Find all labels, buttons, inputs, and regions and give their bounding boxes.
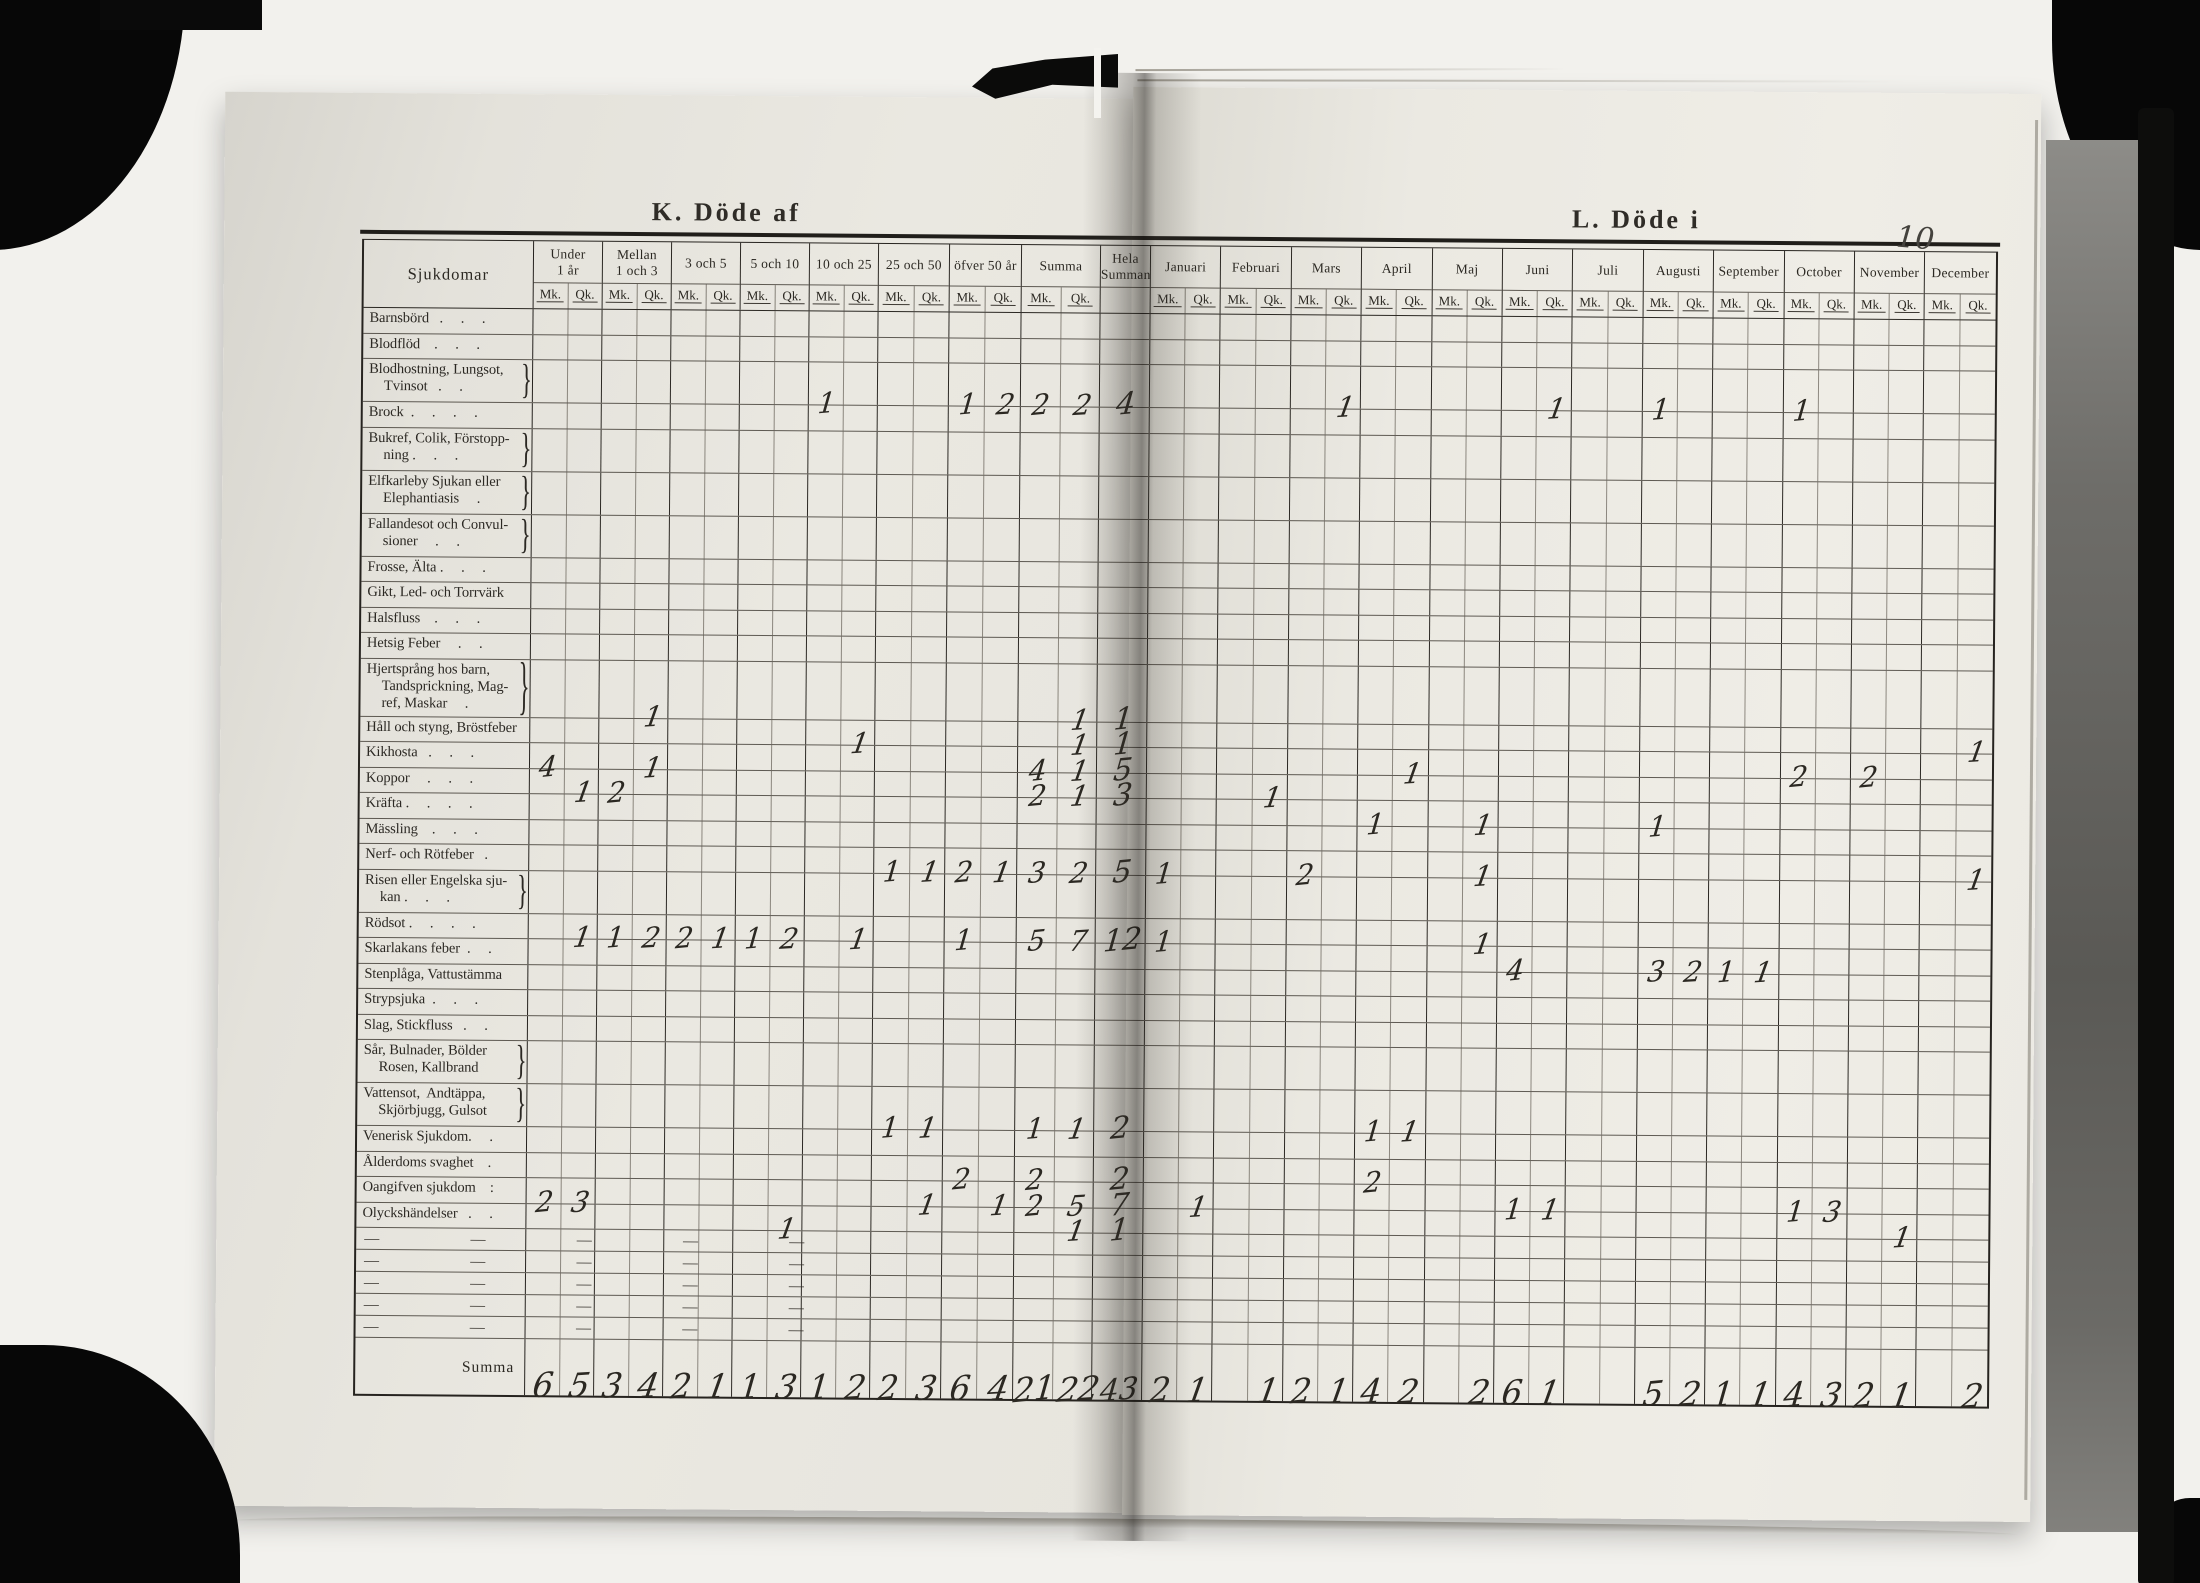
- cell-sep_mk: [1708, 999, 1742, 1024]
- body-group-nov: [1851, 670, 1922, 728]
- cell-jul_qk: [1607, 343, 1642, 368]
- body-group-jan: [1147, 774, 1218, 799]
- body-group-o50: [946, 797, 1018, 822]
- body-group-a1025: [803, 1180, 872, 1205]
- cell-okt_qk: [1811, 1283, 1846, 1304]
- cell-a510_qk: [767, 1180, 802, 1205]
- cell-a510_mk: [738, 559, 772, 584]
- book-cover-edge: [2046, 140, 2142, 1532]
- body-group-jul: [1566, 1135, 1637, 1160]
- cell-a510_mk: [733, 1231, 767, 1252]
- cell-jan_mk: [1148, 614, 1182, 639]
- cell-a510_mk: [737, 745, 771, 770]
- cell-a1025_mk: [805, 847, 839, 872]
- cell-mar_mk: [1283, 1301, 1317, 1322]
- body-group-a35: [666, 966, 735, 991]
- cell-a2550_qk: [909, 772, 945, 797]
- body-group-jan: [1145, 970, 1216, 995]
- cell-maj_mk: [1429, 725, 1463, 750]
- cell-jun_qk: [1531, 1049, 1567, 1091]
- subcol-nov-mk: Mk.: [1854, 294, 1888, 319]
- cell-aug_mk: [1641, 566, 1675, 591]
- body-group-apr: [1354, 1258, 1425, 1280]
- cell-aug_qk: 2: [1672, 948, 1707, 973]
- cell-aug_mk: [1642, 437, 1677, 479]
- cell-nov_qk: [1882, 1163, 1917, 1188]
- cell-m13_qk: [628, 1296, 663, 1317]
- cell-apr_mk: [1357, 946, 1391, 971]
- handwritten-value: 2: [1466, 1375, 1493, 1410]
- body-group-aug: 1: [1643, 369, 1714, 412]
- cell-o50_mk: [942, 1298, 977, 1319]
- cell-a35_qk: [697, 1318, 732, 1339]
- cell-a2550_mk: [870, 1320, 905, 1341]
- body-group-jan: [1149, 434, 1220, 477]
- cell-okt_mk: [1782, 524, 1817, 566]
- body-group-okt: 1: [1783, 370, 1854, 413]
- handwritten-value: 1: [816, 388, 836, 418]
- body-group-m13: 1: [599, 744, 668, 769]
- body-group-a510: [733, 1297, 802, 1319]
- body-group-jan: [1147, 799, 1218, 824]
- cell-sum_qk: [1057, 638, 1097, 663]
- cell-u1_qk: [563, 743, 598, 768]
- body-group-maj: [1432, 316, 1503, 341]
- cell-o50_qk: [984, 313, 1020, 338]
- body-group-aug: 32: [1638, 948, 1709, 973]
- body-group-dec: [1917, 1328, 1988, 1350]
- cell-dec_qk: [1952, 1262, 1988, 1283]
- cell-a1025_mk: [805, 822, 839, 847]
- body-group-aug: [1642, 437, 1713, 480]
- cell-m13_mk: [595, 1204, 629, 1229]
- cell-maj_mk: [1428, 852, 1462, 877]
- cell-aug_mk: [1636, 1260, 1670, 1281]
- body-group-dec: [1920, 925, 1991, 950]
- cell-hs: [1093, 1300, 1142, 1321]
- cell-apr_qk: 1: [1390, 1091, 1426, 1133]
- body-group-maj: [1425, 1211, 1496, 1236]
- cell-okt_qk: [1816, 568, 1851, 593]
- blank-row-dashes: — — — — —: [356, 1231, 525, 1249]
- row-label: Vattensot, Andtäppa,Skjörbjugg, Gulsot: [357, 1083, 526, 1121]
- cell-maj_qk: [1466, 367, 1502, 409]
- cell-apr_qk: [1392, 801, 1427, 826]
- body-group-feb: [1221, 340, 1292, 365]
- cell-jul_mk: [1572, 368, 1607, 410]
- body-group-mar: [1287, 800, 1358, 825]
- body-group-maj: [1425, 1160, 1496, 1185]
- body-group-jan: [1145, 995, 1216, 1020]
- cell-okt_qk: [1814, 855, 1849, 880]
- body-group-okt: [1782, 593, 1853, 618]
- body-group-maj: [1425, 1236, 1496, 1258]
- cell-u1_qk: [559, 1295, 594, 1316]
- handwritten-value: 1: [605, 923, 625, 953]
- body-group-o50: [947, 637, 1019, 662]
- cell-dec_mk: [1917, 1306, 1952, 1327]
- cell-aug_qk: [1671, 1136, 1706, 1161]
- cell-aug_qk: [1670, 1260, 1705, 1281]
- cell-jun_qk: [1530, 1135, 1565, 1160]
- cell-aug_qk: [1673, 803, 1708, 828]
- cell-jul_mk: [1572, 437, 1607, 479]
- subcol-aug-mk: Mk.: [1643, 292, 1677, 317]
- cell-jul_mk: [1566, 1161, 1600, 1186]
- cell-o50_qk: [977, 1277, 1013, 1298]
- body-group-maj: [1427, 972, 1498, 997]
- cell-nov_mk: [1853, 482, 1888, 524]
- cell-mar_qk: 1: [1317, 1345, 1353, 1401]
- cell-aug_qk: 2: [1669, 1348, 1705, 1404]
- column-group-label-sep: September: [1714, 250, 1784, 292]
- cell-u1_mk: [526, 1229, 560, 1250]
- cell-a510_mk: [733, 1205, 767, 1230]
- cell-a35_qk: [698, 1179, 733, 1204]
- cell-m13_qk: [632, 846, 667, 871]
- body-group-o50: [948, 518, 1020, 561]
- cell-feb_mk: [1216, 945, 1250, 970]
- cell-a1025_mk: [802, 1206, 836, 1231]
- body-group-apr: [1357, 852, 1428, 877]
- body-group-a35: [663, 1318, 732, 1340]
- cell-a510_qk: [772, 560, 807, 585]
- handwritten-value: 43: [1098, 1374, 1139, 1408]
- row-label-cell: Hetsig Feber . .: [361, 633, 531, 659]
- body-group-nov: [1854, 320, 1925, 345]
- cell-nov_mk: [1848, 1163, 1882, 1188]
- body-group-a2550: [875, 662, 946, 720]
- body-group-nov: [1849, 924, 1920, 949]
- body-group-aug: [1637, 1093, 1708, 1136]
- cell-m13_mk: [598, 871, 632, 913]
- cell-o50_mk: [943, 1044, 978, 1086]
- cell-m13_mk: [601, 515, 635, 557]
- body-group-u1: 65: [525, 1339, 594, 1396]
- cell-aug_qk: [1675, 567, 1710, 592]
- cell-a35_qk: [699, 1042, 734, 1084]
- cell-jan_qk: [1177, 1300, 1212, 1321]
- cell-o50_qk: [980, 917, 1016, 942]
- cell-a1025_qk: [842, 363, 877, 405]
- body-group-jul: [1571, 566, 1642, 591]
- body-group-hs: 2: [1094, 1157, 1144, 1182]
- cell-feb_mk: [1221, 340, 1255, 365]
- cell-aug_mk: [1641, 523, 1676, 565]
- body-group-dec: [1922, 645, 1993, 670]
- cell-okt_mk: [1778, 1051, 1813, 1093]
- cell-okt_mk: [1779, 974, 1813, 999]
- cell-dec_qk: [1959, 346, 1995, 371]
- cell-okt_qk: [1811, 1239, 1846, 1260]
- cell-a35_qk: [703, 516, 738, 558]
- cell-sep_mk: 1: [1709, 948, 1743, 973]
- cell-m13_mk: [595, 1230, 629, 1251]
- column-group-feb: FebruariMk.Qk.: [1221, 247, 1292, 315]
- cell-apr_qk: [1389, 1210, 1424, 1235]
- cell-o50_qk: [982, 561, 1018, 586]
- body-group-u1: [527, 1041, 596, 1084]
- body-group-jan: [1143, 1256, 1214, 1278]
- cell-m13_mk: [600, 609, 634, 634]
- cell-jun_qk: [1529, 1281, 1564, 1302]
- cell-sep_qk: [1744, 778, 1779, 803]
- body-group-nov: 2: [1851, 754, 1922, 779]
- cell-m13_mk: [602, 404, 636, 429]
- body-group-feb: [1220, 366, 1291, 409]
- body-group-jul: [1570, 617, 1641, 642]
- cell-jun_qk: [1533, 777, 1568, 802]
- row-label-cell: Mässling . . .: [359, 818, 529, 844]
- body-group-a2550: [871, 1232, 942, 1254]
- cell-apr_mk: [1359, 641, 1393, 666]
- cell-a2550_qk: [909, 823, 945, 848]
- cell-u1_mk: [531, 583, 565, 608]
- cell-nov_mk: 2: [1846, 1350, 1881, 1406]
- cell-aug_qk: [1676, 438, 1712, 480]
- row-label-cell: Hjertsprång hos barn,Tandsprickning, Mag…: [360, 658, 530, 716]
- body-group-nov: [1852, 525, 1923, 568]
- body-group-sep: [1711, 643, 1782, 668]
- cell-jul_mk: [1568, 879, 1603, 921]
- body-group-aug: [1640, 668, 1711, 726]
- cell-maj_mk: [1427, 921, 1461, 946]
- body-group-maj: [1429, 641, 1500, 666]
- body-group-m13: [596, 1153, 665, 1178]
- cell-mar_mk: [1289, 589, 1323, 614]
- column-group-label-nov: November: [1855, 252, 1925, 294]
- row-label: Bukref, Colik, Förstopp-ning . . .: [362, 427, 531, 465]
- cell-jan_qk: [1181, 723, 1216, 748]
- cell-mar_mk: [1291, 341, 1325, 366]
- cell-jun_mk: [1498, 802, 1532, 827]
- body-group-mar: [1285, 1047, 1356, 1090]
- body-group-a1025: [808, 431, 877, 474]
- cell-maj_qk: [1459, 1280, 1494, 1301]
- body-group-a2550: [877, 431, 948, 474]
- cell-m13_mk: [596, 1179, 630, 1204]
- handwritten-value: 2: [1028, 781, 1048, 811]
- cell-a35_qk: [701, 745, 736, 770]
- cell-a2550_qk: [908, 917, 944, 942]
- handwritten-value: 1: [1255, 1373, 1282, 1408]
- body-group-u1: [530, 718, 599, 743]
- body-group-hs: [1098, 639, 1148, 664]
- body-group-jul: [1571, 480, 1642, 523]
- body-group-dec: [1918, 1095, 1989, 1138]
- cell-sum_mk: [1016, 968, 1055, 993]
- body-group-sep: 11: [1705, 1348, 1776, 1405]
- row-label: Olyckshändelser . .: [356, 1202, 525, 1222]
- cell-m13_mk: 3: [594, 1340, 628, 1396]
- body-group-feb: [1221, 315, 1292, 340]
- cell-a510_qk: [766, 1319, 801, 1340]
- body-group-mar: [1286, 920, 1357, 945]
- cell-jul_qk: [1599, 1282, 1634, 1303]
- cell-m13_qk: [632, 795, 667, 820]
- cell-a1025_qk: [836, 1254, 871, 1275]
- cell-maj_qk: [1461, 997, 1496, 1022]
- cell-u1_mk: 6: [525, 1339, 559, 1395]
- body-group-jan: [1149, 477, 1220, 520]
- body-group-a2550: [871, 1276, 942, 1298]
- body-group-m13: [602, 335, 671, 360]
- subcol-m13-qk: Qk.: [636, 284, 671, 309]
- cell-sep_qk: [1745, 669, 1781, 726]
- cell-nov_qk: [1883, 1052, 1919, 1094]
- body-group-mar: 21: [1283, 1345, 1354, 1402]
- body-group-aug: [1635, 1326, 1706, 1348]
- handwritten-value: 2: [1395, 1374, 1422, 1409]
- cell-a1025_mk: [803, 1180, 837, 1205]
- cell-jul_qk: [1606, 437, 1642, 479]
- cell-jan_qk: [1184, 365, 1220, 407]
- cell-mar_qk: [1325, 315, 1360, 340]
- cell-a35_qk: [702, 661, 737, 718]
- cell-sum_mk: [1021, 313, 1060, 338]
- handwritten-value: 1: [882, 856, 902, 886]
- cell-a1025_qk: [837, 1044, 872, 1086]
- body-group-feb: [1219, 589, 1290, 614]
- cell-jun_qk: 1: [1530, 1186, 1565, 1211]
- body-group-nov: [1848, 1052, 1919, 1095]
- cell-a2550_qk: [913, 312, 949, 337]
- cell-jan_mk: [1150, 408, 1184, 433]
- body-group-okt: [1780, 829, 1851, 854]
- handwritten-value: 1: [1785, 1197, 1805, 1227]
- cell-m13_qk: [630, 1042, 665, 1084]
- body-group-okt: [1783, 438, 1854, 481]
- cell-u1_qk: [564, 660, 599, 717]
- body-group-jan: [1143, 1234, 1214, 1256]
- cell-maj_mk: [1429, 750, 1463, 775]
- body-group-a35: [668, 719, 737, 744]
- body-group-jul: [1565, 1325, 1636, 1347]
- body-group-aug: [1639, 879, 1710, 922]
- cell-feb_qk: [1254, 477, 1290, 519]
- cell-a1025_qk: [836, 1181, 871, 1206]
- handwritten-value: 1: [1154, 859, 1174, 889]
- cell-nov_mk: [1850, 805, 1884, 830]
- cell-a35_mk: [668, 719, 702, 744]
- cell-a510_qk: [771, 662, 806, 719]
- body-group-sep: [1710, 669, 1781, 727]
- column-group-mar: MarsMk.Qk.: [1291, 247, 1362, 315]
- body-group-a510: [737, 796, 806, 821]
- cell-nov_qk: [1885, 754, 1920, 779]
- cell-jun_mk: [1496, 1092, 1531, 1134]
- cell-aug_mk: [1636, 1238, 1670, 1259]
- cell-nov_mk: [1849, 975, 1883, 1000]
- cell-a35_qk: [705, 311, 740, 336]
- handwritten-value: 3: [913, 1370, 940, 1405]
- cell-a2550_mk: [878, 363, 913, 405]
- handwritten-value: 2: [1031, 390, 1051, 420]
- cell-a1025_qk: [839, 797, 874, 822]
- cell-jan_qk: [1180, 919, 1215, 944]
- body-group-feb: [1219, 477, 1290, 520]
- cell-jan_qk: [1179, 1021, 1214, 1046]
- body-group-sep: [1712, 438, 1783, 481]
- cell-jul_qk: [1605, 523, 1641, 565]
- cell-feb_qk: [1250, 876, 1286, 918]
- cell-a510_mk: [735, 992, 769, 1017]
- cell-okt_qk: [1812, 1094, 1848, 1136]
- row-label-cell: Stenplåga, Vattustämma: [358, 963, 528, 989]
- column-group-label-feb: Februari: [1221, 247, 1291, 289]
- body-group-maj: [1430, 590, 1501, 615]
- cell-m13_mk: [600, 635, 634, 660]
- body-group-jun: [1495, 1237, 1566, 1259]
- cell-nov_mk: [1852, 645, 1886, 670]
- cell-nov_qk: [1888, 414, 1923, 439]
- cell-jun_mk: [1498, 853, 1532, 878]
- body-group-a510: [737, 719, 806, 744]
- cell-feb_mk: [1216, 919, 1250, 944]
- body-group-a510: [734, 1086, 803, 1129]
- cell-maj_mk: [1426, 1091, 1461, 1133]
- cell-maj_mk: [1425, 1211, 1459, 1236]
- body-group-jul: [1569, 777, 1640, 802]
- body-group-feb: [1214, 1184, 1285, 1209]
- cell-dec_mk: [1923, 526, 1958, 568]
- cell-a35_mk: [668, 795, 702, 820]
- cell-u1_qk: 3: [560, 1178, 595, 1203]
- body-group-sum: [1014, 1255, 1093, 1277]
- body-group-a1025: [802, 1231, 871, 1253]
- body-group-nov: [1850, 881, 1921, 924]
- body-group-a510: [738, 559, 807, 584]
- cell-a510_qk: [772, 585, 807, 610]
- cell-a1025_mk: [809, 337, 843, 362]
- subcol-a510-mk: Mk.: [741, 285, 775, 310]
- cell-maj_qk: [1461, 1023, 1496, 1048]
- cell-o50_qk: [983, 475, 1019, 517]
- cell-sum_mk: 3: [1017, 849, 1056, 874]
- cell-m13_mk: 2: [599, 769, 633, 794]
- cell-sep_qk: [1745, 644, 1780, 669]
- cell-a2550_qk: 1: [909, 848, 945, 873]
- cell-a2550_mk: [871, 1276, 906, 1297]
- body-group-maj: [1431, 410, 1502, 435]
- row-label: Stenplåga, Vattustämma: [358, 963, 527, 983]
- body-group-sum: [1016, 968, 1095, 993]
- cell-feb_qk: [1252, 665, 1288, 722]
- cell-u1_mk: [530, 660, 564, 717]
- cell-jan_qk: [1183, 520, 1219, 562]
- cell-a2550_mk: [874, 916, 909, 941]
- cell-a2550_qk: [907, 1019, 943, 1044]
- cell-a1025_qk: [840, 662, 875, 719]
- column-group-label-a35: 3 och 5: [672, 242, 740, 284]
- body-group-a1025: [806, 771, 875, 796]
- body-group-a1025: [809, 311, 878, 336]
- cell-jun_qk: [1532, 879, 1568, 921]
- row-label: Rödsot . . . .: [359, 912, 528, 932]
- body-group-sum: 32: [1017, 849, 1096, 874]
- handwritten-value: 1: [1025, 1114, 1045, 1144]
- body-group-a35: 21: [667, 915, 736, 940]
- body-group-a35: [668, 795, 737, 820]
- body-group-u1: 4: [530, 743, 599, 768]
- handwritten-value: 2: [876, 1370, 900, 1405]
- cell-jun_mk: [1499, 725, 1533, 750]
- cell-a510_qk: 1: [767, 1206, 802, 1231]
- cell-sep_mk: [1710, 803, 1744, 828]
- cell-a1025_mk: [801, 1319, 835, 1340]
- cell-a2550_qk: [912, 363, 948, 405]
- cell-a510_mk: [733, 1253, 767, 1274]
